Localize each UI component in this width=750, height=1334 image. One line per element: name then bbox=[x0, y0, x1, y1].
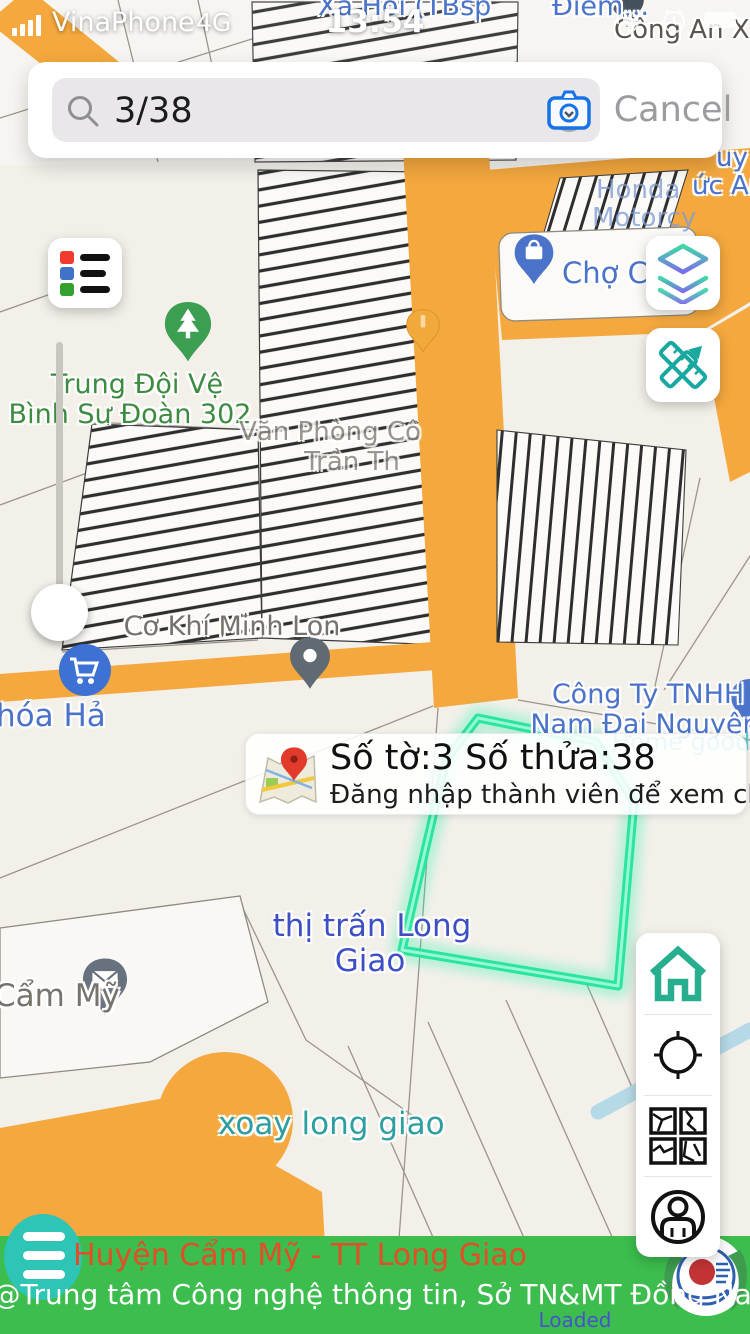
home-button[interactable] bbox=[636, 933, 720, 1014]
map-label: thị trấn Long bbox=[273, 910, 472, 943]
cancel-button[interactable]: Cancel bbox=[624, 62, 722, 158]
search-card: 3/38 Cancel bbox=[28, 62, 722, 158]
zoom-slider-handle[interactable] bbox=[31, 584, 88, 641]
map-label: Công Ty TNHH bbox=[552, 680, 744, 709]
map-label: ức Anh bbox=[692, 172, 750, 200]
ruler-pencil-icon bbox=[653, 335, 713, 395]
map-label: hóa Hả bbox=[0, 700, 106, 733]
status-bar: VinaPhone 4G 13:54 bbox=[0, 0, 750, 44]
legend-button[interactable] bbox=[48, 238, 122, 308]
layers-icon bbox=[654, 242, 712, 304]
map-label: Cẩm Mỹ bbox=[0, 980, 120, 1013]
map-label: xoay long giao bbox=[218, 1108, 445, 1141]
camera-search-icon[interactable] bbox=[544, 86, 594, 136]
map-label: Trung Đội Vệ bbox=[51, 370, 223, 399]
loaded-status: Loaded bbox=[539, 1308, 612, 1332]
home-icon bbox=[648, 945, 708, 1003]
parcel-info-popup[interactable]: Số tờ:3 Số thửa:38 Đăng nhập thành viên … bbox=[245, 733, 747, 815]
battery-icon bbox=[704, 12, 741, 28]
search-query-text: 3/38 bbox=[114, 91, 193, 131]
map-label: Văn Phòng Cô bbox=[239, 418, 421, 446]
credit-text: @Trung tâm Công nghệ thông tin, Sở TN&MT… bbox=[0, 1278, 750, 1311]
map-label: Trần Th bbox=[304, 448, 400, 476]
search-icon bbox=[66, 94, 100, 128]
map-label: Cơ Khí Minh Lon bbox=[124, 612, 341, 641]
app-screen: Xã Hội (TBsp Điểm... Công An Xã Lon uy ứ… bbox=[0, 0, 750, 1334]
folded-map-icon bbox=[256, 744, 322, 806]
status-time: 13:54 bbox=[326, 4, 425, 40]
parcel-popup-subtitle: Đăng nhập thành viên để xem chi tiết bbox=[330, 780, 750, 810]
region-title: Huyện Cẩm Mỹ - TT Long Giao bbox=[73, 1238, 527, 1273]
parcel-popup-title: Số tờ:3 Số thửa:38 bbox=[330, 738, 656, 778]
network-label: 4G bbox=[196, 8, 231, 37]
menu-icon bbox=[23, 1232, 65, 1241]
carrier-label: VinaPhone bbox=[52, 7, 195, 38]
rotation-lock-icon bbox=[618, 12, 638, 35]
measure-button[interactable] bbox=[646, 328, 720, 402]
legend-icon bbox=[58, 248, 112, 298]
person-icon bbox=[649, 1188, 707, 1246]
crosshair-icon bbox=[650, 1027, 706, 1083]
map-label: Motorcy bbox=[592, 204, 696, 232]
parcel-grid-icon bbox=[648, 1106, 708, 1166]
signal-icon bbox=[12, 14, 46, 36]
account-button[interactable] bbox=[636, 1176, 720, 1257]
parcel-map-button[interactable] bbox=[636, 1095, 720, 1176]
map-label: Bình Sư Đoàn 302 bbox=[9, 400, 252, 429]
search-input[interactable]: 3/38 bbox=[52, 78, 600, 142]
map-label: Honda bbox=[596, 176, 680, 204]
status-icons bbox=[614, 6, 744, 36]
locate-button[interactable] bbox=[636, 1014, 720, 1095]
layers-button[interactable] bbox=[646, 236, 720, 310]
map-label: Giao bbox=[335, 945, 406, 978]
alarm-icon bbox=[664, 10, 684, 32]
map-tools-panel bbox=[636, 933, 720, 1257]
zoom-slider-track[interactable] bbox=[56, 342, 63, 600]
